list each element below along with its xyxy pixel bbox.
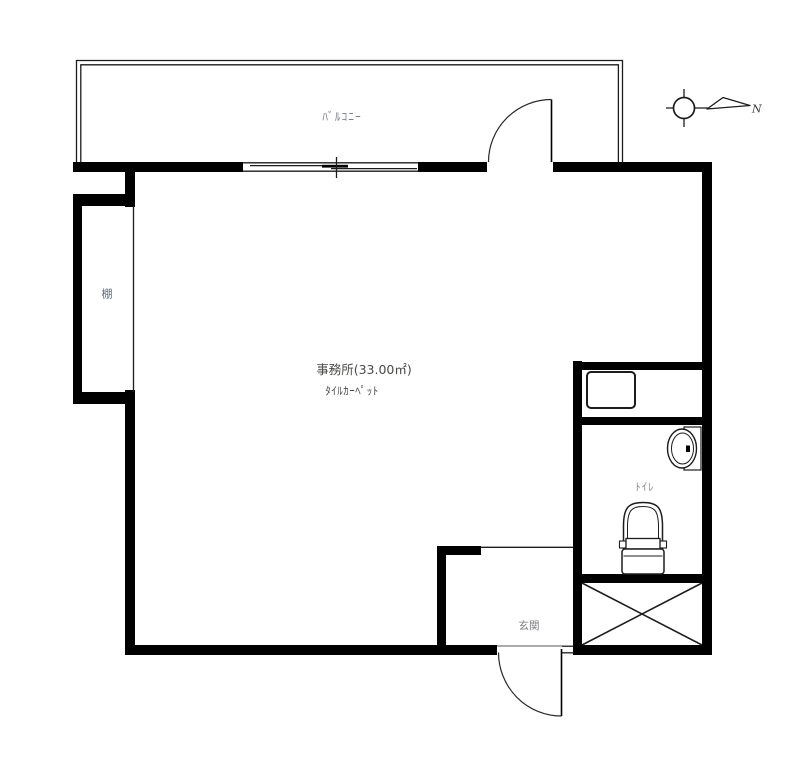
north-label: N <box>751 103 762 116</box>
wall-shelf-left <box>73 194 82 404</box>
floor-plan: N ﾊﾞﾙｺﾆｰ 棚 事務所(33.00㎡) ﾀｲﾙｶｰﾍﾟｯﾄ ﾄｲﾚ 玄関 <box>0 0 800 773</box>
compass-circle <box>674 98 695 119</box>
balcony-label: ﾊﾞﾙｺﾆｰ <box>322 111 362 123</box>
wall-shelf-bottom <box>73 392 135 404</box>
counter-fixture <box>587 372 635 408</box>
wall-utility-toilet-divider <box>573 417 702 425</box>
toilet-hinge-tab-left <box>620 541 627 548</box>
entrance-label: 玄関 <box>519 621 540 632</box>
wall-top-mid-segment <box>418 162 487 172</box>
wall-bottom-left-segment <box>125 645 497 655</box>
wall-shelf-top <box>73 194 135 206</box>
wall-right <box>702 162 712 655</box>
wall-top-right-segment <box>553 162 712 172</box>
basin-tap <box>686 446 690 453</box>
toilet-tank <box>622 549 664 574</box>
wall-entrance-top <box>437 546 481 555</box>
wall-top-left-segment <box>73 162 243 172</box>
north-arrow <box>707 98 750 110</box>
north-compass: N <box>666 89 762 127</box>
office-label: 事務所(33.00㎡) <box>316 364 412 377</box>
shelf-label: 棚 <box>102 289 113 300</box>
toilet-hinge-tab-right <box>660 541 667 548</box>
toilet-fixture <box>620 503 667 575</box>
wall-entrance-left <box>437 546 446 645</box>
pipe-space <box>582 583 702 645</box>
entrance-door-swing-arc <box>499 653 562 717</box>
hand-basin <box>668 427 702 470</box>
entrance-door <box>499 649 562 716</box>
balcony-door-swing-arc <box>489 100 552 163</box>
balcony-door <box>489 100 552 163</box>
window-meeting-stile <box>322 165 348 168</box>
balcony-window <box>243 157 418 178</box>
office-floor-label: ﾀｲﾙｶｰﾍﾟｯﾄ <box>325 386 379 397</box>
floor-plan-drawing: N <box>0 0 800 773</box>
wall-utility-top <box>582 362 702 370</box>
toilet-label: ﾄｲﾚ <box>635 482 655 493</box>
thin-lines <box>134 206 574 653</box>
toilet-seat-hinge <box>626 539 660 550</box>
wall-bottom-right-segment <box>573 645 712 655</box>
wall-toilet-bottom <box>573 574 702 583</box>
wall-left-main <box>125 390 135 655</box>
wall-toilet-left <box>573 361 582 645</box>
